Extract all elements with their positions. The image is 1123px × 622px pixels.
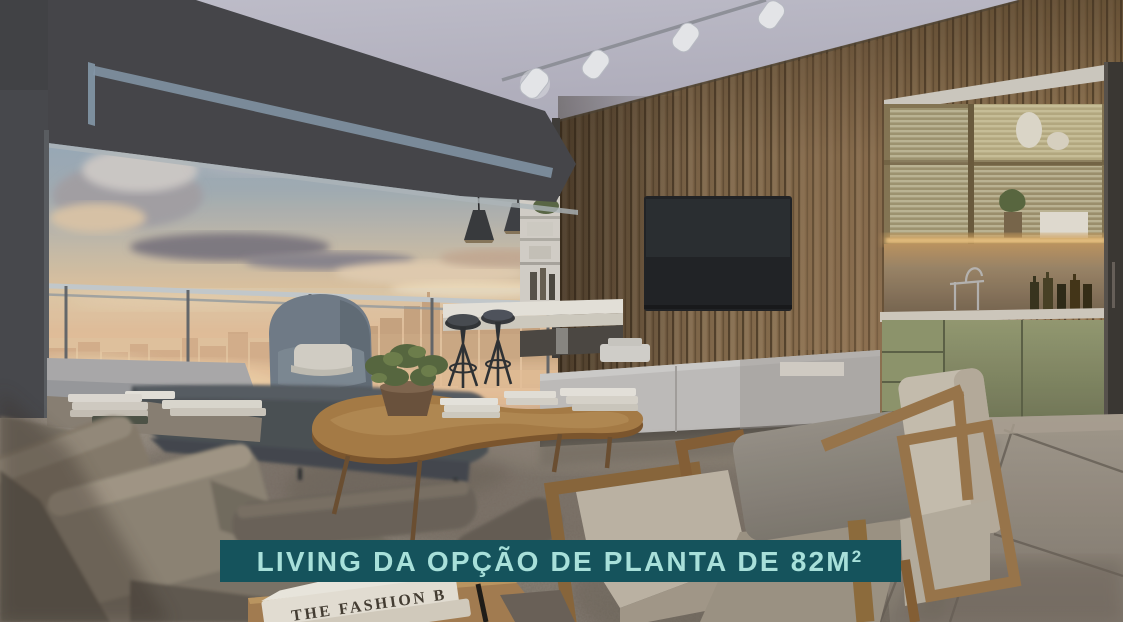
svg-text:LIVING DA OPÇÃO DE PLANTA DE 8: LIVING DA OPÇÃO DE PLANTA DE 82M2	[257, 546, 864, 577]
